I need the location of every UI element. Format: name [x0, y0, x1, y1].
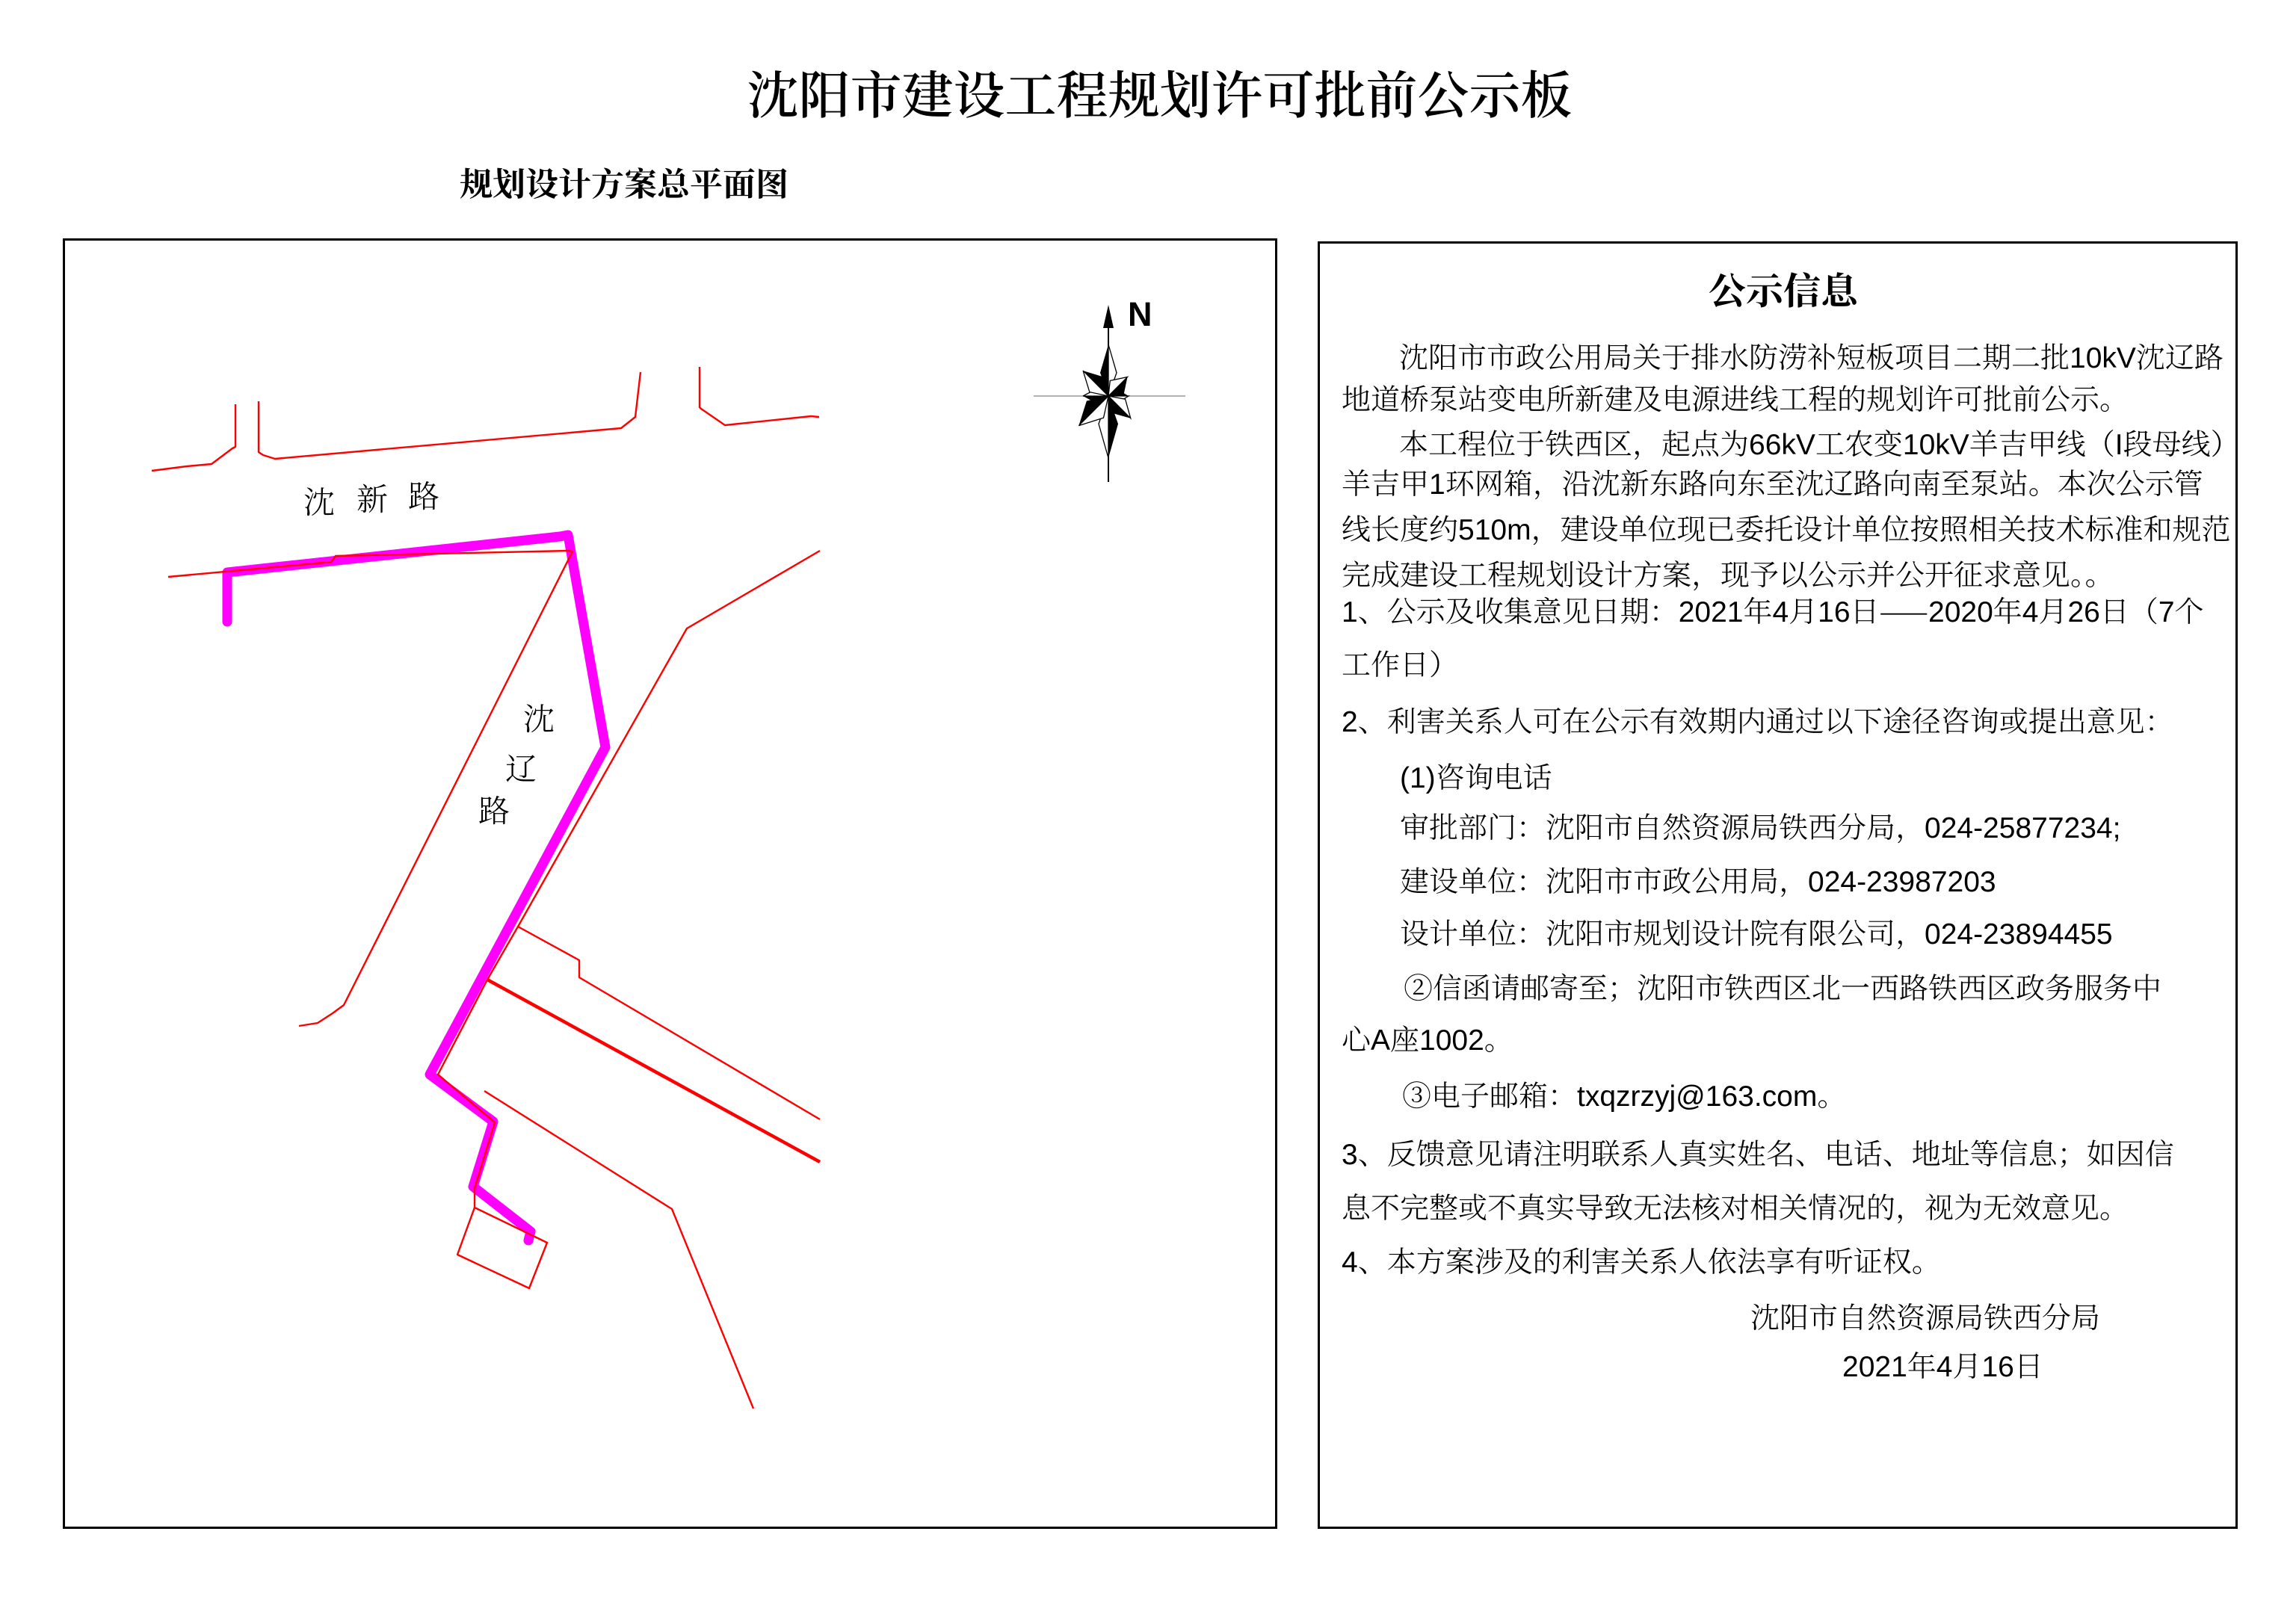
svg-text:辽: 辽 [505, 745, 537, 790]
svg-text:N: N [1128, 295, 1152, 333]
svg-text:路: 路 [408, 472, 439, 517]
svg-text:沈: 沈 [303, 478, 335, 523]
svg-text:路: 路 [478, 787, 510, 832]
svg-text:沈: 沈 [523, 695, 555, 740]
svg-text:新: 新 [357, 475, 388, 520]
